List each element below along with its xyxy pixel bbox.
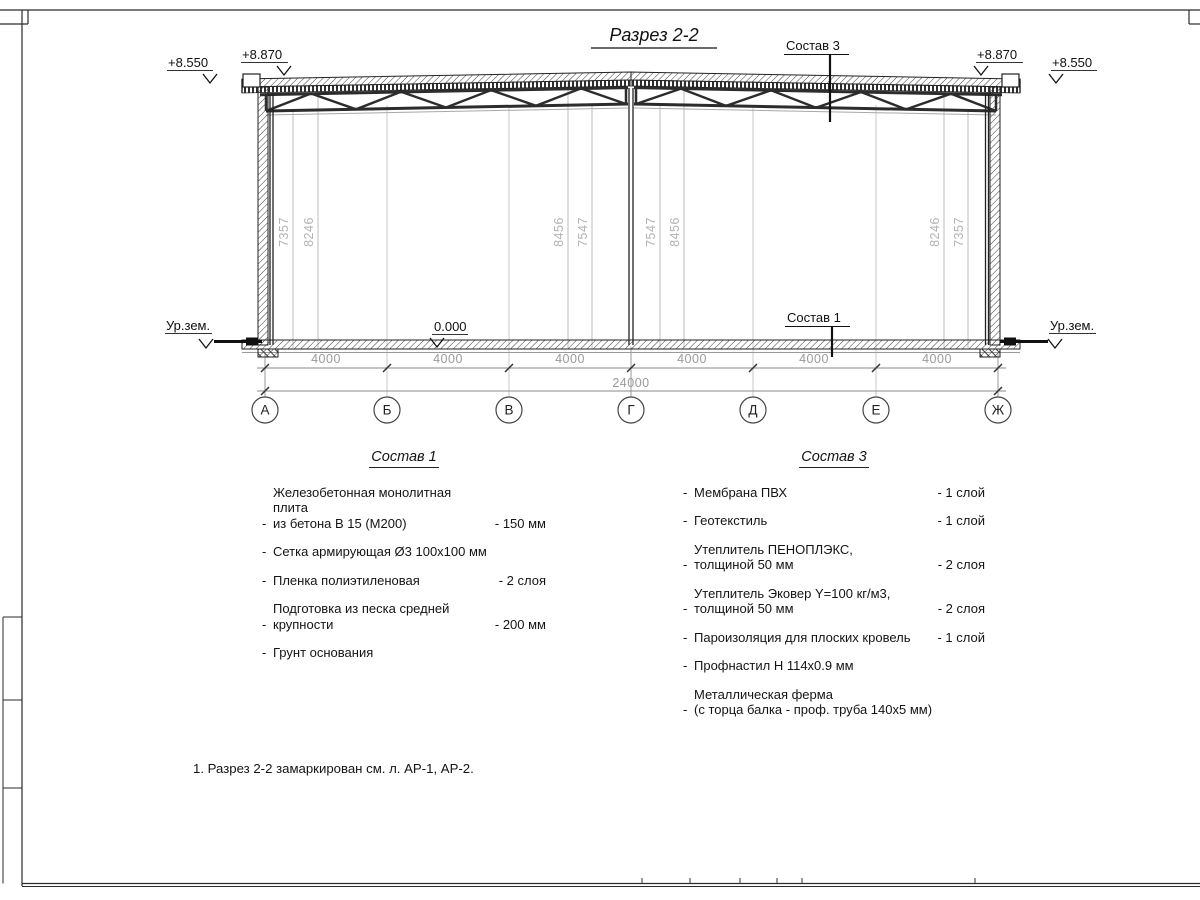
vertical-dim: 8246 xyxy=(302,217,316,247)
bay-dim: 4000 xyxy=(555,352,585,366)
axis-label: Г xyxy=(627,403,635,418)
axis-label: Д xyxy=(748,403,757,418)
level-left-eave: +8.870 xyxy=(242,47,282,62)
ground-level-right: Ур.зем. xyxy=(1050,318,1094,333)
drawing-title: Разрез 2-2 xyxy=(591,25,717,48)
axis-label: Ж xyxy=(992,403,1005,418)
level-left-outer: +8.550 xyxy=(168,55,208,70)
grid-lines xyxy=(265,105,998,397)
vertical-dim: 7547 xyxy=(576,217,590,247)
wall-right xyxy=(986,87,1001,345)
center-column xyxy=(629,88,633,345)
vertical-dim: 7357 xyxy=(277,217,291,247)
vertical-dim: 7357 xyxy=(952,217,966,247)
bay-dim: 4000 xyxy=(922,352,952,366)
wall-left xyxy=(258,87,273,345)
callout-floor: Состав 1 xyxy=(785,310,850,357)
bay-dim: 4000 xyxy=(311,352,341,366)
sheet-frame xyxy=(0,10,1200,887)
level-right-eave: +8.870 xyxy=(977,47,1017,62)
drawing-sheet: { "bullet": "-", "title": "Разрез 2-2", … xyxy=(0,0,1200,900)
bay-dim: 4000 xyxy=(677,352,707,366)
callout-roof-label: Состав 3 xyxy=(786,38,840,53)
level-right-outer: +8.550 xyxy=(1052,55,1092,70)
drawing-title-text: Разрез 2-2 xyxy=(609,25,698,45)
section-drawing-canvas: Разрез 2-2 7357 8246 8456 7547 7547 8456… xyxy=(0,0,1200,900)
vertical-dim-witness-lines xyxy=(293,83,968,348)
axis-circles: А Б В Г Д Е Ж xyxy=(252,397,1011,423)
vertical-dim: 7547 xyxy=(644,217,658,247)
level-floor: 0.000 xyxy=(434,319,467,334)
sheet-margin-marks xyxy=(3,617,22,884)
vertical-dim: 8246 xyxy=(928,217,942,247)
vertical-dim: 8456 xyxy=(552,217,566,247)
axis-label: Б xyxy=(383,403,392,418)
vertical-dim: 8456 xyxy=(668,217,682,247)
total-dim: 24000 xyxy=(612,376,649,390)
bay-dim: 4000 xyxy=(433,352,463,366)
vertical-dim-labels: 7357 8246 8456 7547 7547 8456 8246 7357 xyxy=(277,217,966,247)
axis-label: Е xyxy=(871,403,880,418)
bay-dim: 4000 xyxy=(799,352,829,366)
axis-label: В xyxy=(504,403,513,418)
ground-level-left: Ур.зем. xyxy=(166,318,210,333)
callout-floor-label: Состав 1 xyxy=(787,310,841,325)
axis-label: А xyxy=(260,403,269,418)
title-block-ticks xyxy=(642,878,975,884)
